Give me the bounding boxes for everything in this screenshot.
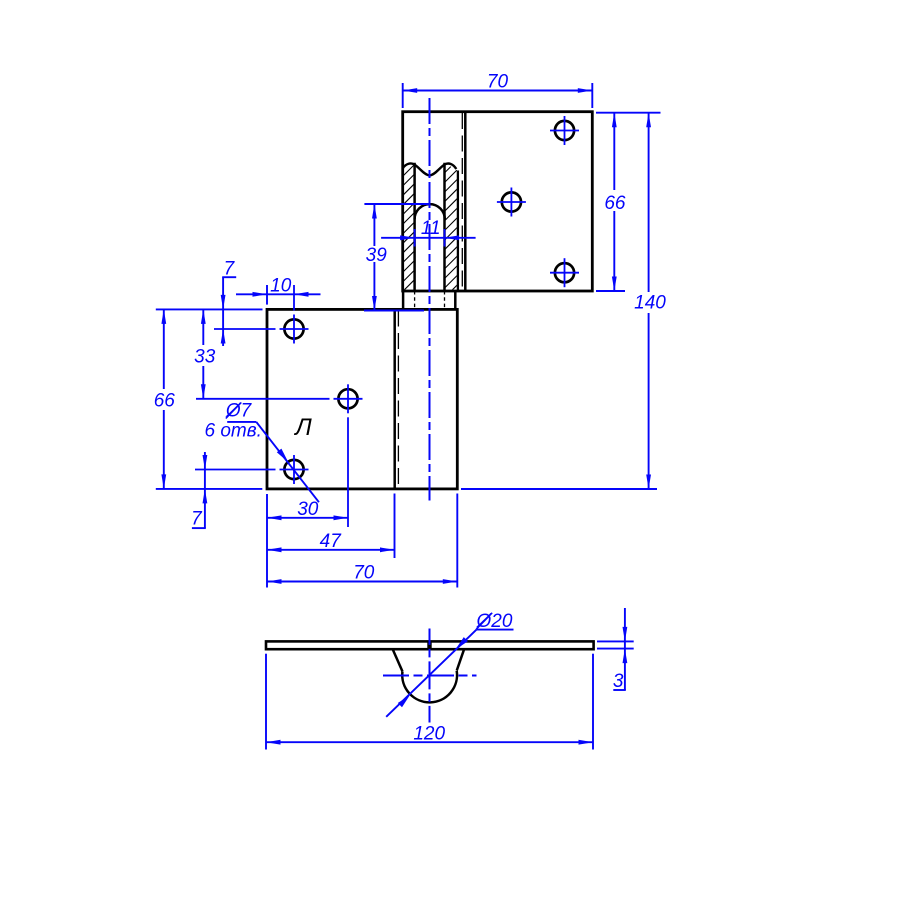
svg-text:7: 7 xyxy=(191,508,203,529)
svg-text:70: 70 xyxy=(487,72,509,93)
svg-text:Ø20: Ø20 xyxy=(476,611,513,632)
svg-text:140: 140 xyxy=(634,293,666,314)
svg-text:3: 3 xyxy=(613,671,624,692)
svg-text:39: 39 xyxy=(366,245,388,266)
svg-text:66: 66 xyxy=(154,391,176,412)
svg-text:Л: Л xyxy=(293,414,312,441)
svg-text:10: 10 xyxy=(270,275,292,296)
svg-text:11: 11 xyxy=(421,218,441,239)
svg-text:30: 30 xyxy=(297,499,319,520)
svg-text:66: 66 xyxy=(604,193,626,214)
svg-text:33: 33 xyxy=(194,347,216,368)
svg-text:120: 120 xyxy=(413,723,445,744)
svg-text:Ø7: Ø7 xyxy=(225,400,253,421)
svg-text:47: 47 xyxy=(320,531,343,552)
svg-text:7: 7 xyxy=(224,258,236,279)
svg-text:6 отв.: 6 отв. xyxy=(204,421,261,442)
svg-text:70: 70 xyxy=(353,563,375,584)
